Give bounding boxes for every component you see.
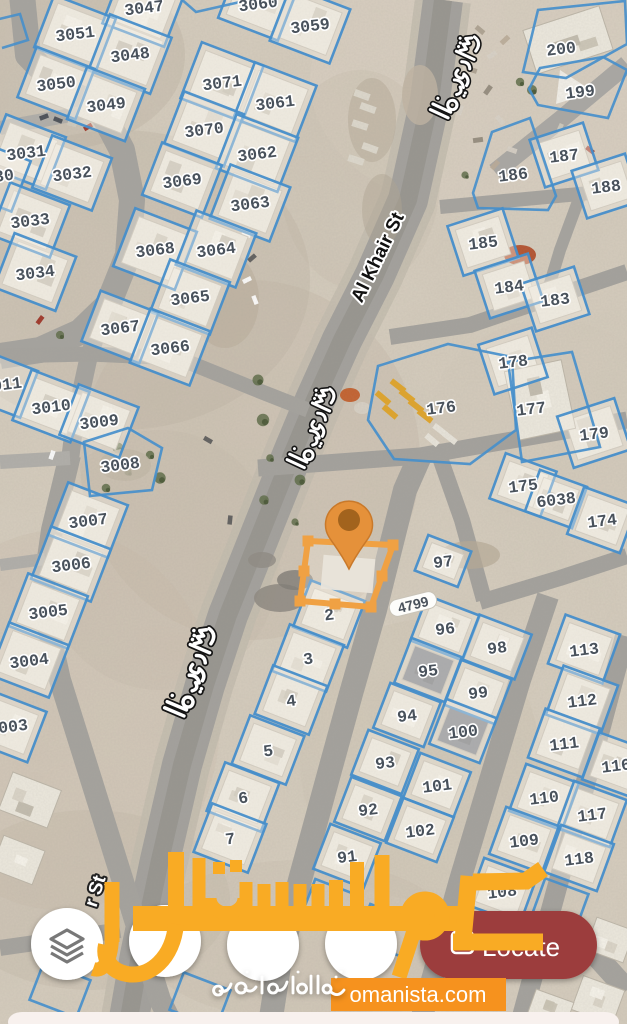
- svg-text:97: 97: [432, 552, 454, 573]
- svg-text:101: 101: [421, 775, 453, 797]
- svg-text:118: 118: [563, 848, 595, 870]
- svg-text:omanista.com: omanista.com: [350, 982, 487, 1007]
- svg-text:188: 188: [590, 176, 622, 198]
- svg-text:96: 96: [434, 619, 456, 640]
- svg-text:178: 178: [497, 351, 529, 373]
- svg-text:100: 100: [447, 721, 479, 743]
- svg-text:110: 110: [528, 787, 560, 809]
- svg-text:113: 113: [568, 639, 600, 661]
- svg-text:112: 112: [566, 690, 598, 712]
- svg-text:183: 183: [539, 289, 571, 311]
- svg-text:92: 92: [357, 800, 379, 821]
- svg-text:187: 187: [548, 145, 580, 167]
- svg-text:98: 98: [486, 638, 508, 659]
- svg-text:176: 176: [425, 397, 457, 419]
- svg-text:116: 116: [600, 755, 627, 777]
- svg-text:109: 109: [508, 830, 540, 852]
- svg-text:94: 94: [396, 706, 418, 727]
- svg-text:179: 179: [578, 423, 610, 445]
- svg-text:184: 184: [493, 276, 525, 298]
- svg-text:186: 186: [497, 164, 529, 186]
- svg-text:175: 175: [507, 475, 539, 497]
- svg-text:117: 117: [576, 804, 608, 826]
- svg-text:199: 199: [564, 81, 596, 103]
- svg-text:99: 99: [467, 683, 489, 704]
- svg-text:111: 111: [548, 733, 580, 755]
- svg-text:177: 177: [515, 398, 547, 420]
- svg-text:95: 95: [417, 661, 439, 682]
- svg-text:102: 102: [404, 820, 436, 842]
- svg-text:174: 174: [586, 510, 618, 532]
- svg-text:93: 93: [374, 753, 396, 774]
- svg-text:185: 185: [467, 232, 499, 254]
- svg-text:200: 200: [545, 38, 577, 60]
